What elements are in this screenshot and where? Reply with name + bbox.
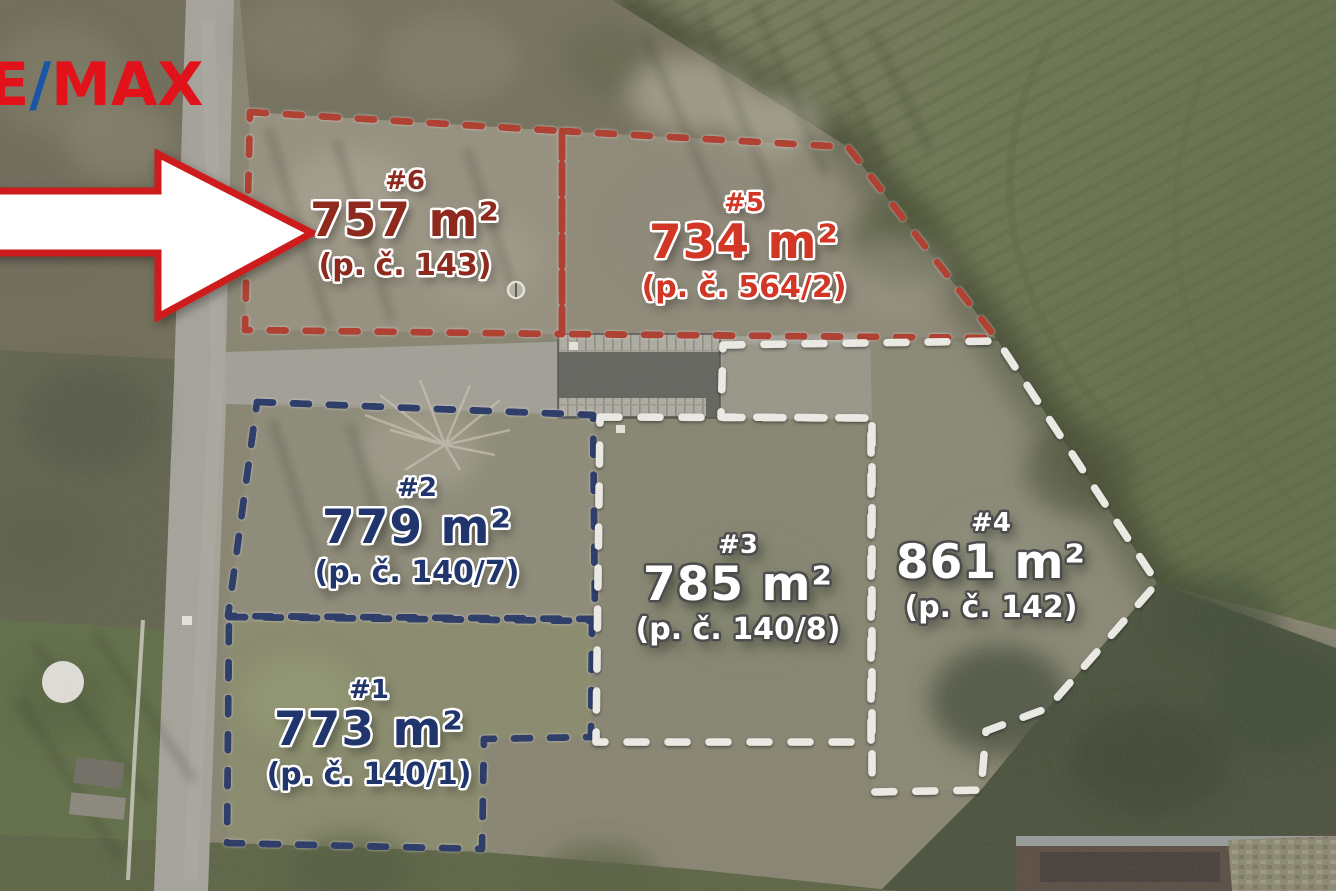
listing-photo: RE/MAX #6 757 m² (p. č. 143) #5 734 m² (… (0, 0, 1336, 891)
photo-grain (0, 0, 1336, 891)
aerial-photo (0, 0, 1336, 891)
